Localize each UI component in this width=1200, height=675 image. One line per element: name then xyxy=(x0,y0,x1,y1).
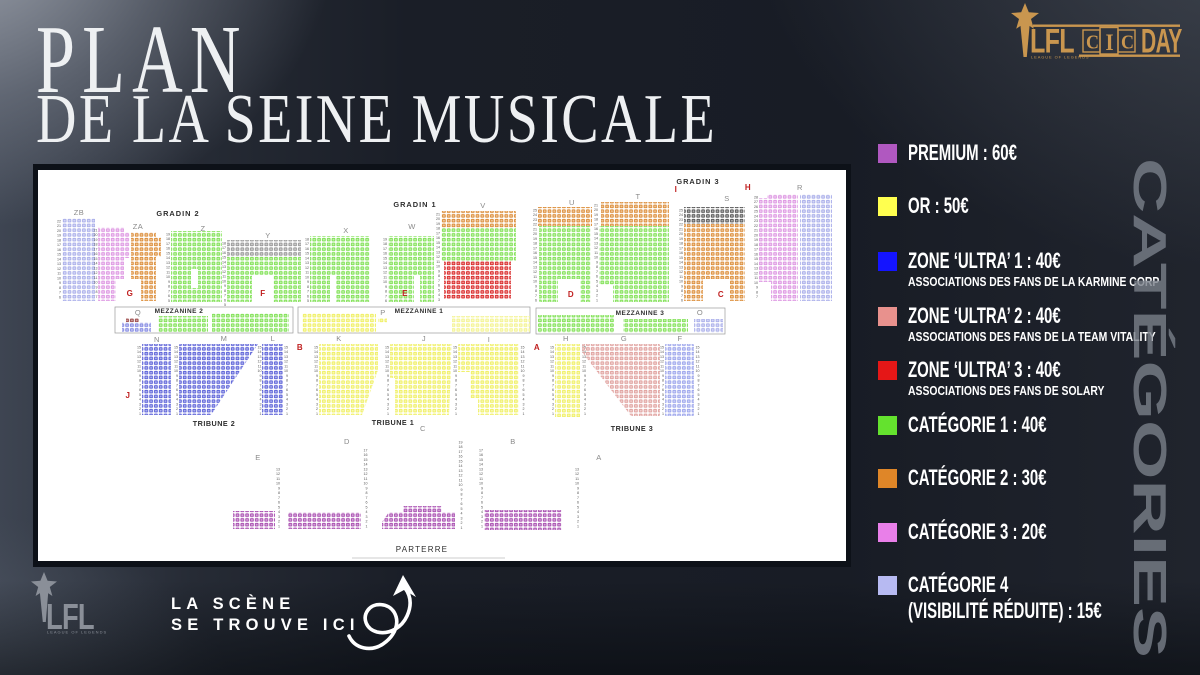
svg-text:C: C xyxy=(1086,32,1099,54)
svg-text:8: 8 xyxy=(307,285,309,289)
svg-text:25: 25 xyxy=(754,210,758,214)
svg-text:8: 8 xyxy=(681,289,683,293)
svg-text:B: B xyxy=(510,437,516,446)
svg-text:11: 11 xyxy=(57,272,61,276)
svg-text:16: 16 xyxy=(479,453,483,457)
svg-text:2: 2 xyxy=(316,407,318,411)
svg-text:14: 14 xyxy=(222,260,226,264)
svg-text:6: 6 xyxy=(139,388,141,392)
svg-text:7: 7 xyxy=(316,383,318,387)
svg-text:8: 8 xyxy=(59,286,61,290)
svg-text:18: 18 xyxy=(679,242,683,246)
svg-text:11: 11 xyxy=(222,275,226,279)
svg-text:4: 4 xyxy=(523,398,525,402)
svg-text:9: 9 xyxy=(139,374,141,378)
svg-text:17: 17 xyxy=(436,231,440,235)
svg-text:12: 12 xyxy=(533,270,537,274)
svg-text:18: 18 xyxy=(533,242,537,246)
svg-text:N: N xyxy=(154,335,160,344)
svg-text:20: 20 xyxy=(754,233,758,237)
svg-text:13: 13 xyxy=(258,355,262,359)
svg-text:2: 2 xyxy=(698,407,700,411)
svg-text:1: 1 xyxy=(577,524,579,528)
svg-text:4: 4 xyxy=(286,398,288,402)
svg-text:13: 13 xyxy=(660,355,664,359)
svg-text:5: 5 xyxy=(523,393,525,397)
svg-text:2: 2 xyxy=(584,407,586,411)
svg-text:3: 3 xyxy=(176,402,178,406)
svg-text:10: 10 xyxy=(575,482,579,486)
svg-text:7: 7 xyxy=(96,295,98,299)
svg-text:14: 14 xyxy=(137,350,141,354)
svg-text:2: 2 xyxy=(260,407,262,411)
svg-text:3: 3 xyxy=(662,402,664,406)
svg-text:13: 13 xyxy=(364,467,368,471)
svg-text:18: 18 xyxy=(57,238,61,242)
svg-text:7: 7 xyxy=(286,383,288,387)
svg-text:20: 20 xyxy=(94,233,98,237)
svg-text:19: 19 xyxy=(94,238,98,242)
svg-text:14: 14 xyxy=(314,350,318,354)
svg-text:14: 14 xyxy=(479,463,483,467)
svg-text:17: 17 xyxy=(57,243,61,247)
svg-text:12: 12 xyxy=(364,472,368,476)
svg-text:6: 6 xyxy=(523,388,525,392)
svg-text:12: 12 xyxy=(436,255,440,259)
svg-text:9: 9 xyxy=(176,374,178,378)
svg-text:3: 3 xyxy=(577,515,579,519)
svg-text:1: 1 xyxy=(596,298,598,302)
svg-text:13: 13 xyxy=(284,355,288,359)
svg-text:O: O xyxy=(697,308,703,317)
svg-text:17: 17 xyxy=(383,247,387,251)
svg-text:6: 6 xyxy=(698,388,700,392)
svg-text:12: 12 xyxy=(166,266,170,270)
svg-text:10: 10 xyxy=(550,369,554,373)
svg-text:6: 6 xyxy=(224,298,226,302)
svg-text:3: 3 xyxy=(461,516,463,520)
svg-text:5: 5 xyxy=(366,505,368,509)
svg-text:3: 3 xyxy=(139,402,141,406)
svg-text:13: 13 xyxy=(314,355,318,359)
svg-text:16: 16 xyxy=(594,227,598,231)
svg-text:8: 8 xyxy=(286,379,288,383)
svg-text:11: 11 xyxy=(364,477,368,481)
svg-text:15: 15 xyxy=(364,458,368,462)
svg-text:GRADIN 2: GRADIN 2 xyxy=(156,209,199,218)
svg-text:6: 6 xyxy=(662,388,664,392)
svg-text:10: 10 xyxy=(521,369,525,373)
svg-text:9: 9 xyxy=(438,269,440,273)
svg-text:22: 22 xyxy=(754,224,758,228)
svg-text:14: 14 xyxy=(385,350,389,354)
svg-text:13: 13 xyxy=(533,265,537,269)
svg-text:19: 19 xyxy=(594,213,598,217)
svg-text:11: 11 xyxy=(582,364,586,368)
svg-text:4: 4 xyxy=(584,398,586,402)
svg-text:10: 10 xyxy=(305,275,309,279)
svg-text:14: 14 xyxy=(284,350,288,354)
svg-text:R: R xyxy=(797,183,803,192)
svg-text:12: 12 xyxy=(582,360,586,364)
svg-text:14: 14 xyxy=(305,256,309,260)
svg-text:2: 2 xyxy=(366,520,368,524)
svg-text:5: 5 xyxy=(260,393,262,397)
svg-text:12: 12 xyxy=(258,360,262,364)
svg-text:1: 1 xyxy=(316,412,318,416)
svg-text:2: 2 xyxy=(286,407,288,411)
svg-text:28: 28 xyxy=(754,195,758,199)
svg-text:16: 16 xyxy=(364,453,368,457)
svg-text:21: 21 xyxy=(754,229,758,233)
svg-text:10: 10 xyxy=(479,482,483,486)
svg-text:Y: Y xyxy=(265,231,271,240)
svg-text:6: 6 xyxy=(577,501,579,505)
svg-text:11: 11 xyxy=(459,478,463,482)
svg-text:3: 3 xyxy=(286,402,288,406)
svg-text:4: 4 xyxy=(278,510,280,514)
svg-text:9: 9 xyxy=(96,285,98,289)
svg-text:5: 5 xyxy=(552,393,554,397)
svg-text:10: 10 xyxy=(436,265,440,269)
svg-text:10: 10 xyxy=(459,483,463,487)
svg-text:12: 12 xyxy=(660,360,664,364)
svg-text:9: 9 xyxy=(662,374,664,378)
svg-text:4: 4 xyxy=(438,293,440,297)
svg-text:20: 20 xyxy=(679,232,683,236)
svg-text:16: 16 xyxy=(305,247,309,251)
svg-text:3: 3 xyxy=(455,402,457,406)
svg-text:8: 8 xyxy=(385,290,387,294)
svg-text:1: 1 xyxy=(260,412,262,416)
svg-text:6: 6 xyxy=(316,388,318,392)
svg-text:13: 13 xyxy=(521,355,525,359)
svg-text:25: 25 xyxy=(533,208,537,212)
svg-text:8: 8 xyxy=(438,274,440,278)
svg-text:13: 13 xyxy=(754,267,758,271)
svg-text:18: 18 xyxy=(594,218,598,222)
svg-text:6: 6 xyxy=(260,388,262,392)
svg-text:8: 8 xyxy=(168,285,170,289)
svg-text:19: 19 xyxy=(383,237,387,241)
svg-text:9: 9 xyxy=(523,374,525,378)
svg-text:15: 15 xyxy=(459,459,463,463)
svg-text:16: 16 xyxy=(679,251,683,255)
svg-text:6: 6 xyxy=(307,294,309,298)
svg-text:5: 5 xyxy=(139,393,141,397)
svg-text:T: T xyxy=(635,192,640,201)
svg-text:13: 13 xyxy=(679,265,683,269)
svg-text:6: 6 xyxy=(552,388,554,392)
svg-text:10: 10 xyxy=(364,482,368,486)
svg-text:18: 18 xyxy=(436,227,440,231)
svg-text:14: 14 xyxy=(459,464,463,468)
svg-text:15: 15 xyxy=(57,253,61,257)
svg-text:H: H xyxy=(745,183,751,192)
svg-text:B: B xyxy=(297,343,303,352)
svg-text:14: 14 xyxy=(383,261,387,265)
svg-text:14: 14 xyxy=(679,261,683,265)
svg-text:2: 2 xyxy=(596,294,598,298)
svg-text:D: D xyxy=(344,437,350,446)
svg-text:3: 3 xyxy=(316,402,318,406)
svg-text:2: 2 xyxy=(552,407,554,411)
svg-text:1: 1 xyxy=(387,412,389,416)
svg-text:9: 9 xyxy=(481,486,483,490)
svg-text:I: I xyxy=(488,335,491,344)
svg-text:10: 10 xyxy=(594,256,598,260)
svg-text:11: 11 xyxy=(533,275,537,279)
svg-text:10: 10 xyxy=(174,369,178,373)
svg-text:9: 9 xyxy=(224,284,226,288)
svg-text:13: 13 xyxy=(383,266,387,270)
svg-text:17: 17 xyxy=(305,242,309,246)
svg-text:13: 13 xyxy=(276,467,280,471)
svg-text:13: 13 xyxy=(385,355,389,359)
svg-text:TRIBUNE 2: TRIBUNE 2 xyxy=(193,419,235,428)
svg-text:16: 16 xyxy=(533,251,537,255)
svg-text:16: 16 xyxy=(436,236,440,240)
svg-text:8: 8 xyxy=(662,379,664,383)
svg-text:13: 13 xyxy=(575,467,579,471)
svg-text:11: 11 xyxy=(174,364,178,368)
svg-text:10: 10 xyxy=(94,281,98,285)
svg-text:10: 10 xyxy=(166,275,170,279)
svg-text:9: 9 xyxy=(168,280,170,284)
svg-text:8: 8 xyxy=(756,290,758,294)
svg-text:13: 13 xyxy=(174,355,178,359)
svg-text:18: 18 xyxy=(459,445,463,449)
svg-text:16: 16 xyxy=(166,247,170,251)
svg-text:10: 10 xyxy=(453,369,457,373)
svg-text:7: 7 xyxy=(387,383,389,387)
svg-text:5: 5 xyxy=(662,393,664,397)
svg-text:8: 8 xyxy=(260,379,262,383)
svg-text:12: 12 xyxy=(385,360,389,364)
svg-text:12: 12 xyxy=(459,474,463,478)
svg-text:8: 8 xyxy=(481,491,483,495)
svg-text:4: 4 xyxy=(481,510,483,514)
svg-text:20: 20 xyxy=(594,208,598,212)
svg-text:9: 9 xyxy=(307,280,309,284)
svg-text:6: 6 xyxy=(168,294,170,298)
svg-text:14: 14 xyxy=(258,350,262,354)
svg-text:11: 11 xyxy=(305,271,309,275)
svg-text:22: 22 xyxy=(57,219,61,223)
svg-text:11: 11 xyxy=(575,477,579,481)
svg-text:7: 7 xyxy=(552,383,554,387)
svg-text:7: 7 xyxy=(584,383,586,387)
svg-text:12: 12 xyxy=(594,246,598,250)
svg-text:6: 6 xyxy=(387,388,389,392)
svg-text:Q: Q xyxy=(135,308,141,317)
svg-text:1: 1 xyxy=(286,412,288,416)
svg-text:2: 2 xyxy=(662,407,664,411)
svg-text:13: 13 xyxy=(222,265,226,269)
svg-text:8: 8 xyxy=(278,491,280,495)
svg-text:13: 13 xyxy=(137,355,141,359)
svg-text:7: 7 xyxy=(59,291,61,295)
svg-text:16: 16 xyxy=(94,252,98,256)
svg-text:15: 15 xyxy=(679,256,683,260)
svg-text:13: 13 xyxy=(305,261,309,265)
svg-text:16: 16 xyxy=(222,251,226,255)
svg-text:C: C xyxy=(718,290,724,299)
svg-text:10: 10 xyxy=(137,369,141,373)
svg-text:16: 16 xyxy=(754,252,758,256)
svg-text:W: W xyxy=(408,222,416,231)
svg-text:15: 15 xyxy=(479,458,483,462)
svg-text:8: 8 xyxy=(461,493,463,497)
svg-text:6: 6 xyxy=(596,275,598,279)
svg-text:8: 8 xyxy=(224,289,226,293)
svg-text:D: D xyxy=(568,290,574,299)
svg-text:3: 3 xyxy=(438,298,440,302)
svg-text:8: 8 xyxy=(596,265,598,269)
svg-text:1: 1 xyxy=(584,412,586,416)
svg-text:12: 12 xyxy=(383,271,387,275)
svg-text:13: 13 xyxy=(696,355,700,359)
svg-text:9: 9 xyxy=(577,486,579,490)
svg-text:17: 17 xyxy=(594,222,598,226)
svg-text:4: 4 xyxy=(461,512,463,516)
svg-text:9: 9 xyxy=(552,374,554,378)
svg-text:X: X xyxy=(343,226,349,235)
svg-text:15: 15 xyxy=(314,345,318,349)
svg-text:15: 15 xyxy=(174,345,178,349)
svg-text:22: 22 xyxy=(533,223,537,227)
svg-text:11: 11 xyxy=(166,270,170,274)
svg-text:15: 15 xyxy=(166,251,170,255)
svg-text:6: 6 xyxy=(461,502,463,506)
svg-text:20: 20 xyxy=(57,229,61,233)
svg-text:16: 16 xyxy=(383,252,387,256)
svg-text:21: 21 xyxy=(436,212,440,216)
svg-text:10: 10 xyxy=(222,279,226,283)
svg-text:9: 9 xyxy=(535,284,537,288)
svg-text:8: 8 xyxy=(387,379,389,383)
svg-text:11: 11 xyxy=(314,364,318,368)
svg-text:3: 3 xyxy=(481,515,483,519)
svg-text:24: 24 xyxy=(754,214,758,218)
svg-text:9: 9 xyxy=(316,374,318,378)
svg-text:10: 10 xyxy=(696,369,700,373)
svg-text:7: 7 xyxy=(224,294,226,298)
svg-text:8: 8 xyxy=(584,379,586,383)
svg-text:12: 12 xyxy=(521,360,525,364)
svg-text:12: 12 xyxy=(222,270,226,274)
svg-text:5: 5 xyxy=(278,505,280,509)
svg-text:DAY: DAY xyxy=(1141,21,1182,59)
svg-text:4: 4 xyxy=(387,398,389,402)
svg-text:A: A xyxy=(596,453,602,462)
svg-text:16: 16 xyxy=(459,455,463,459)
svg-text:9: 9 xyxy=(59,281,61,285)
svg-text:7: 7 xyxy=(168,289,170,293)
svg-text:13: 13 xyxy=(550,355,554,359)
svg-text:11: 11 xyxy=(696,364,700,368)
svg-text:2: 2 xyxy=(176,407,178,411)
svg-text:11: 11 xyxy=(679,275,683,279)
svg-text:10: 10 xyxy=(533,280,537,284)
svg-text:9: 9 xyxy=(681,284,683,288)
svg-text:MEZZANINE 2: MEZZANINE 2 xyxy=(155,308,204,315)
svg-text:12: 12 xyxy=(137,360,141,364)
svg-text:1: 1 xyxy=(176,412,178,416)
svg-text:4: 4 xyxy=(366,510,368,514)
svg-text:3: 3 xyxy=(366,515,368,519)
svg-text:7: 7 xyxy=(756,295,758,299)
svg-text:7: 7 xyxy=(535,294,537,298)
svg-text:1: 1 xyxy=(278,524,280,528)
svg-text:7: 7 xyxy=(481,496,483,500)
svg-text:1: 1 xyxy=(139,412,141,416)
svg-text:11: 11 xyxy=(94,276,98,280)
svg-text:7: 7 xyxy=(176,383,178,387)
svg-text:25: 25 xyxy=(679,208,683,212)
svg-text:7: 7 xyxy=(260,383,262,387)
svg-text:8: 8 xyxy=(366,491,368,495)
svg-text:17: 17 xyxy=(754,248,758,252)
svg-text:5: 5 xyxy=(168,299,170,303)
svg-text:7: 7 xyxy=(596,270,598,274)
svg-text:10: 10 xyxy=(660,369,664,373)
svg-text:8: 8 xyxy=(552,379,554,383)
svg-text:5: 5 xyxy=(596,279,598,283)
svg-text:12: 12 xyxy=(305,266,309,270)
svg-text:P: P xyxy=(380,308,386,317)
svg-text:GRADIN 3: GRADIN 3 xyxy=(676,177,719,186)
svg-text:14: 14 xyxy=(754,262,758,266)
svg-text:7: 7 xyxy=(698,383,700,387)
svg-text:4: 4 xyxy=(577,510,579,514)
svg-text:15: 15 xyxy=(660,345,664,349)
svg-text:5: 5 xyxy=(316,393,318,397)
svg-text:23: 23 xyxy=(679,218,683,222)
svg-text:2: 2 xyxy=(455,407,457,411)
svg-text:12: 12 xyxy=(284,360,288,364)
svg-text:3: 3 xyxy=(278,515,280,519)
svg-text:12: 12 xyxy=(57,267,61,271)
svg-text:10: 10 xyxy=(57,276,61,280)
svg-text:20: 20 xyxy=(533,232,537,236)
svg-text:6: 6 xyxy=(385,299,387,303)
svg-text:G: G xyxy=(127,289,134,298)
svg-text:6: 6 xyxy=(286,388,288,392)
svg-text:15: 15 xyxy=(284,345,288,349)
svg-text:13: 13 xyxy=(453,355,457,359)
svg-text:7: 7 xyxy=(662,383,664,387)
svg-text:5: 5 xyxy=(224,303,226,307)
svg-text:6: 6 xyxy=(455,388,457,392)
svg-text:TRIBUNE 1: TRIBUNE 1 xyxy=(372,418,414,427)
svg-text:5: 5 xyxy=(438,288,440,292)
svg-text:18: 18 xyxy=(94,243,98,247)
svg-text:7: 7 xyxy=(438,279,440,283)
svg-text:13: 13 xyxy=(459,469,463,473)
svg-text:6: 6 xyxy=(535,299,537,303)
svg-text:13: 13 xyxy=(479,467,483,471)
svg-text:10: 10 xyxy=(276,482,280,486)
svg-text:MEZZANINE 1: MEZZANINE 1 xyxy=(395,308,444,315)
svg-text:12: 12 xyxy=(314,360,318,364)
svg-text:1: 1 xyxy=(461,526,463,530)
svg-text:8: 8 xyxy=(523,379,525,383)
svg-text:11: 11 xyxy=(258,364,262,368)
svg-text:4: 4 xyxy=(698,398,700,402)
svg-text:15: 15 xyxy=(385,345,389,349)
svg-text:6: 6 xyxy=(176,388,178,392)
